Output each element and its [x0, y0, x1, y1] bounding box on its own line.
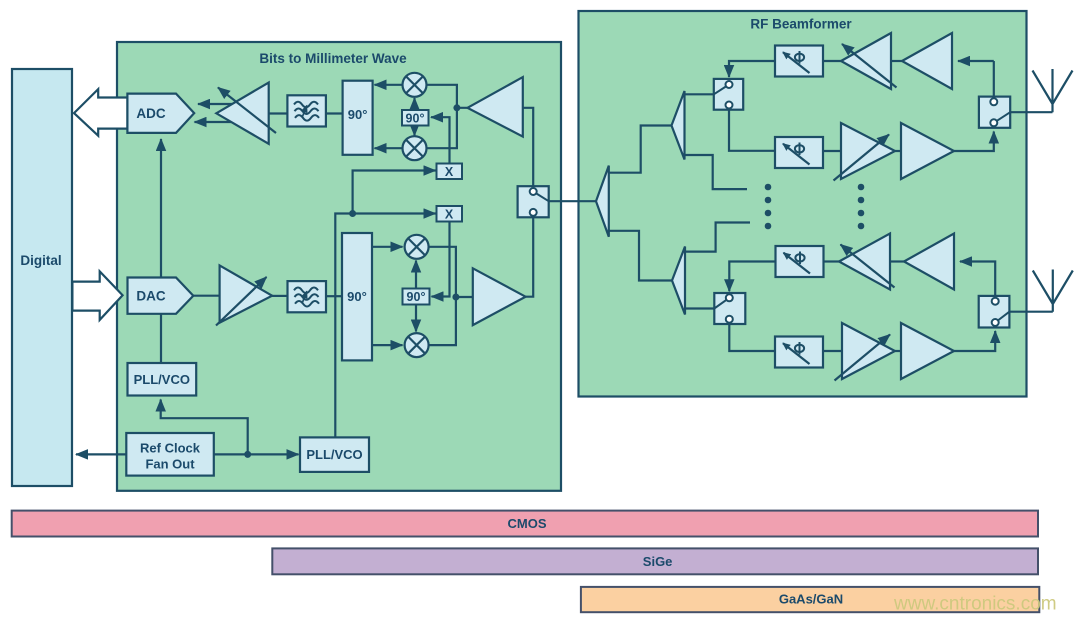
svg-text:X: X	[445, 165, 454, 179]
svg-text:CMOS: CMOS	[508, 516, 547, 531]
svg-text:90°: 90°	[407, 290, 426, 304]
svg-text:SiGe: SiGe	[643, 554, 673, 569]
svg-text:90°: 90°	[348, 107, 368, 122]
svg-text:PLL/VCO: PLL/VCO	[306, 447, 362, 462]
svg-text:DAC: DAC	[136, 289, 165, 304]
svg-text:Digital: Digital	[20, 253, 61, 268]
svg-text:Bits to Millimeter Wave: Bits to Millimeter Wave	[259, 51, 407, 66]
svg-text:www.cntronics.com: www.cntronics.com	[893, 594, 1057, 615]
svg-text:ADC: ADC	[136, 106, 165, 121]
svg-text:90°: 90°	[347, 289, 367, 304]
svg-text:GaAs/GaN: GaAs/GaN	[779, 592, 843, 607]
svg-text:90°: 90°	[406, 111, 425, 125]
svg-text:X: X	[445, 208, 454, 222]
svg-text:RF Beamformer: RF Beamformer	[750, 17, 852, 32]
svg-text:PLL/VCO: PLL/VCO	[134, 372, 190, 387]
svg-text:Fan Out: Fan Out	[145, 457, 195, 472]
svg-text:Ref Clock: Ref Clock	[140, 441, 201, 456]
